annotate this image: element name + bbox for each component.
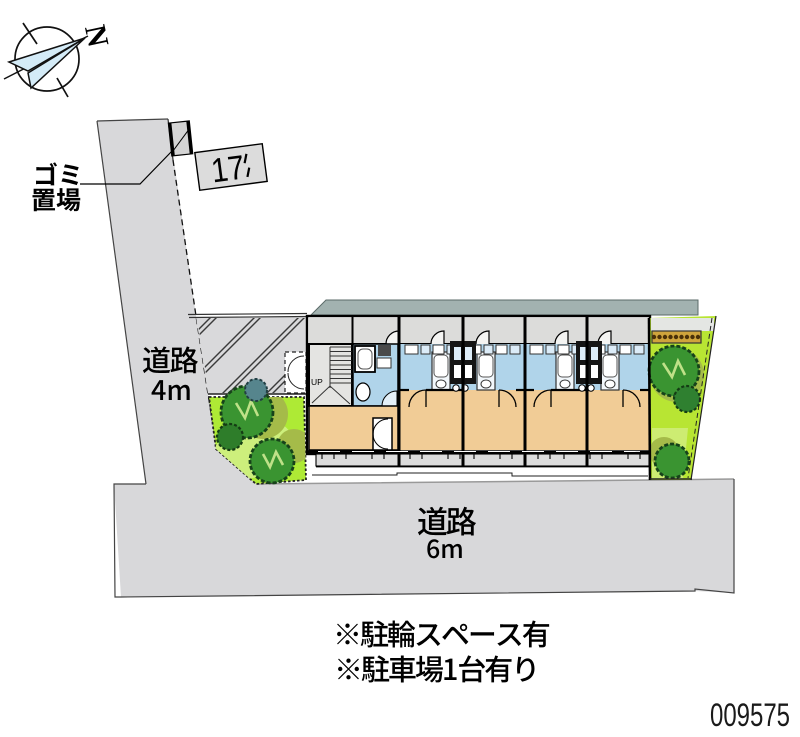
svg-text:009575: 009575 bbox=[710, 697, 790, 732]
svg-text:UP: UP bbox=[311, 377, 323, 387]
svg-text:17: 17 bbox=[209, 148, 247, 190]
